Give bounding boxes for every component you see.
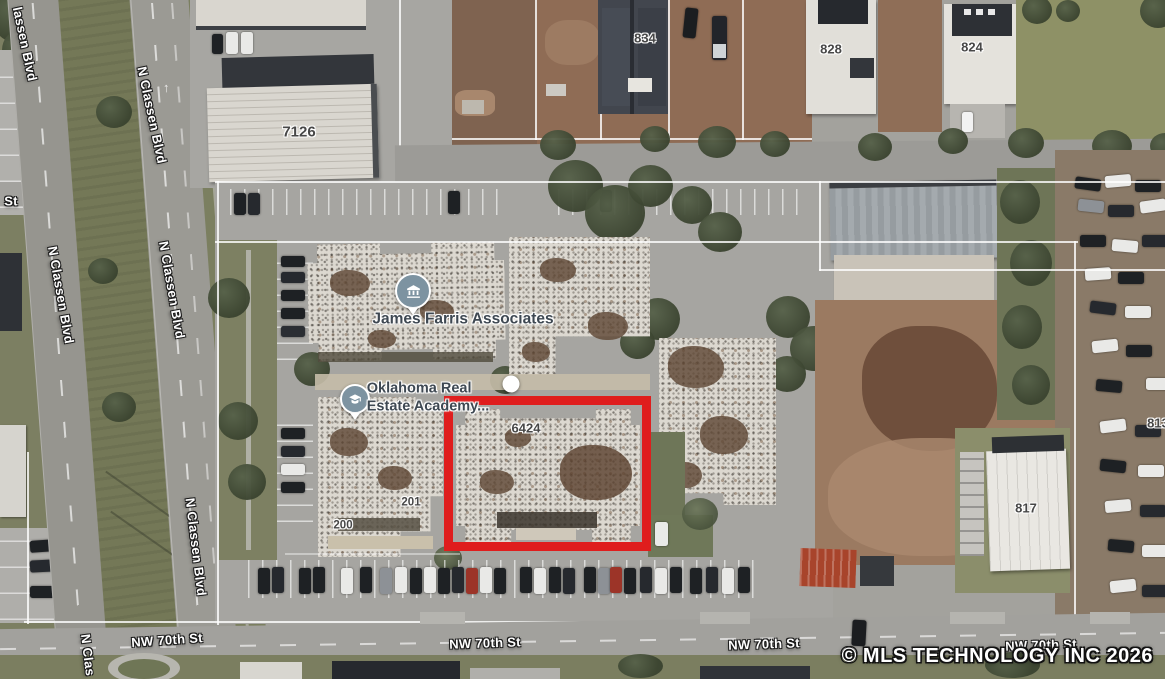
tree xyxy=(218,402,258,440)
james-farris-pin[interactable] xyxy=(395,273,431,309)
building-828-dark-section xyxy=(818,0,868,24)
car xyxy=(380,568,392,594)
car xyxy=(281,464,305,475)
car xyxy=(272,567,284,593)
tree xyxy=(1056,0,1080,22)
white-building-west xyxy=(0,425,26,517)
car xyxy=(1140,505,1165,517)
car xyxy=(313,567,325,593)
car xyxy=(258,568,270,594)
roof-patch xyxy=(522,342,550,362)
car xyxy=(738,567,750,593)
car xyxy=(424,567,436,593)
car xyxy=(1077,199,1104,214)
tree xyxy=(618,654,663,678)
car xyxy=(438,568,450,594)
building-number-813: 813 xyxy=(1147,417,1165,430)
car xyxy=(248,193,260,215)
tree xyxy=(698,212,742,252)
property-line xyxy=(819,269,1165,271)
white-building-top xyxy=(196,0,366,30)
property-line xyxy=(217,181,219,625)
car xyxy=(655,522,668,546)
street-label-nw70: NW 70th St xyxy=(728,636,800,651)
car xyxy=(1146,378,1165,390)
concrete-pad xyxy=(470,668,560,679)
tree xyxy=(208,278,250,318)
mobile-building xyxy=(960,452,984,556)
tree xyxy=(640,126,670,152)
car xyxy=(1138,465,1164,477)
tree xyxy=(96,96,132,128)
loading-apron xyxy=(834,255,994,303)
car xyxy=(722,568,734,594)
car xyxy=(1096,379,1123,393)
car xyxy=(241,32,253,54)
tree xyxy=(88,258,118,284)
building-number-201: 201 xyxy=(401,497,420,509)
car xyxy=(549,567,561,593)
car xyxy=(281,272,305,283)
car xyxy=(226,32,238,54)
roof-patch xyxy=(700,416,748,454)
car xyxy=(299,568,311,594)
tree xyxy=(1012,365,1050,405)
car xyxy=(360,567,372,593)
concrete-pad xyxy=(546,84,566,96)
dark-building-fragment xyxy=(700,666,810,679)
car xyxy=(624,568,636,594)
attribution-watermark: © MLS TECHNOLOGY INC 2026 xyxy=(842,645,1153,668)
poi-label-james-farris[interactable]: James Farris Associates xyxy=(372,311,553,330)
ok-real-estate-pin[interactable] xyxy=(340,384,370,414)
driveway-apron xyxy=(950,612,1005,624)
car xyxy=(610,567,622,593)
car xyxy=(281,428,305,439)
car xyxy=(1142,585,1165,597)
entry-walk xyxy=(328,536,433,549)
car xyxy=(281,326,305,337)
street-label-nw70: NW 70th St xyxy=(449,635,521,650)
tree xyxy=(540,130,576,160)
warehouse-roof xyxy=(829,180,997,261)
roof-ridge xyxy=(630,0,634,114)
car xyxy=(1080,235,1106,247)
car xyxy=(534,568,546,594)
roof-patch xyxy=(588,312,628,340)
dirt-lot xyxy=(878,0,942,132)
car xyxy=(1126,345,1152,357)
parking-stall-lines xyxy=(230,189,508,215)
car xyxy=(962,112,973,132)
driveway-apron xyxy=(1090,612,1130,624)
tree xyxy=(858,133,892,161)
tree xyxy=(1000,180,1040,224)
street-label-st: St xyxy=(4,195,18,208)
roof-slope xyxy=(602,8,630,106)
car xyxy=(1118,272,1144,284)
tree xyxy=(628,165,673,207)
dirt-patch xyxy=(545,20,600,65)
car xyxy=(281,446,305,457)
car xyxy=(494,568,506,594)
driveway-apron xyxy=(420,612,465,624)
tree xyxy=(760,131,790,157)
dark-shed xyxy=(860,556,894,586)
car xyxy=(1105,499,1132,513)
museum-icon xyxy=(405,283,422,300)
building-828-dark-section xyxy=(850,58,874,78)
lot-line xyxy=(742,0,744,140)
car xyxy=(1108,539,1135,553)
car xyxy=(281,256,305,267)
car xyxy=(563,568,575,594)
satellite-map-canvas[interactable]: ↑ ↑ xyxy=(0,0,1165,679)
tree xyxy=(228,464,266,500)
tree xyxy=(1002,305,1042,349)
car xyxy=(1125,306,1151,318)
car xyxy=(234,193,246,215)
tree xyxy=(682,498,718,530)
building-number-834: 834 xyxy=(634,32,656,45)
landscape-trim xyxy=(318,352,493,362)
concrete-pad xyxy=(462,100,484,114)
rooftop-vent xyxy=(976,9,983,15)
car xyxy=(584,567,596,593)
tree xyxy=(1008,128,1044,158)
red-roof-shed xyxy=(799,548,856,588)
poi-label-line1: Oklahoma Real xyxy=(367,380,490,398)
driveway-apron xyxy=(700,612,750,624)
car xyxy=(410,568,422,594)
car xyxy=(1112,239,1139,253)
roof-patch xyxy=(668,346,724,388)
building-number-817: 817 xyxy=(1015,502,1037,515)
car xyxy=(1142,545,1165,557)
car xyxy=(520,567,532,593)
north-arrow-icon: ↑ xyxy=(162,80,170,95)
car xyxy=(1108,205,1134,217)
lot-line xyxy=(535,0,537,140)
dirt-patch xyxy=(452,0,537,148)
property-line xyxy=(215,241,1078,243)
roof-patch xyxy=(378,466,412,490)
car xyxy=(1099,459,1126,474)
car xyxy=(640,567,652,593)
tree xyxy=(102,392,136,422)
poi-label-line2: Estate Academy... xyxy=(367,398,490,416)
car xyxy=(341,568,353,594)
car xyxy=(690,568,702,594)
car xyxy=(281,290,305,301)
car xyxy=(448,191,460,214)
tree xyxy=(938,128,968,154)
roof-patch xyxy=(368,330,396,348)
car xyxy=(281,482,305,493)
car xyxy=(466,568,478,594)
building-number-824: 824 xyxy=(961,41,983,54)
car xyxy=(212,34,223,54)
car xyxy=(1142,235,1165,247)
property-line xyxy=(215,181,1165,183)
car xyxy=(851,620,866,647)
white-dot-marker[interactable] xyxy=(503,376,520,393)
rooftop-vent xyxy=(964,9,971,15)
car xyxy=(452,567,464,593)
poi-label-ok-real-estate[interactable]: Oklahoma Real Estate Academy... xyxy=(367,380,490,415)
traffic-island-grass xyxy=(118,659,170,679)
roof-patch xyxy=(540,258,576,282)
building-817-dark-edge xyxy=(992,435,1065,454)
property-line xyxy=(27,452,29,624)
rooftop-vent xyxy=(988,9,995,15)
building-number-200: 200 xyxy=(333,520,352,532)
car xyxy=(598,568,610,594)
lot-line xyxy=(285,553,460,555)
dark-building-west xyxy=(0,253,22,331)
car xyxy=(655,568,667,594)
building-number-7126: 7126 xyxy=(282,125,315,140)
car xyxy=(395,567,407,593)
property-line xyxy=(819,181,821,271)
truck-trailer xyxy=(713,44,726,58)
porch xyxy=(628,78,652,92)
lot-line xyxy=(452,138,812,140)
car xyxy=(706,567,718,593)
building-number-828: 828 xyxy=(820,43,842,56)
roof-patch xyxy=(330,270,370,296)
white-building-fragment xyxy=(240,662,302,679)
car xyxy=(670,567,682,593)
ok-real-estate-pin-tail xyxy=(350,413,360,420)
tree xyxy=(698,126,736,158)
tree xyxy=(1010,240,1052,286)
car xyxy=(480,567,492,593)
roof-patch xyxy=(330,428,368,456)
subject-property-highlight xyxy=(444,396,651,551)
lot-line xyxy=(668,0,670,140)
dark-building-fragment xyxy=(332,661,460,679)
car xyxy=(281,308,305,319)
building-number-6424: 6424 xyxy=(512,422,541,435)
graduation-cap-icon xyxy=(348,392,362,406)
